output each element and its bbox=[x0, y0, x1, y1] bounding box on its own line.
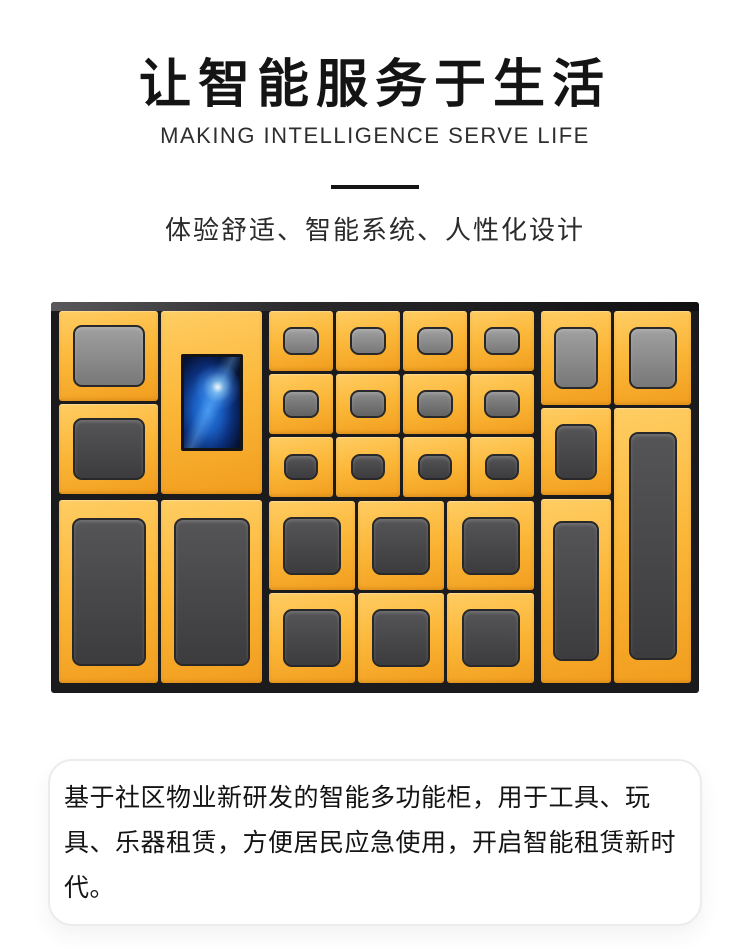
locker-door bbox=[470, 311, 534, 371]
locker-door-window bbox=[418, 454, 452, 480]
locker-door-window bbox=[484, 390, 520, 418]
locker-touchscreen bbox=[181, 354, 243, 451]
locker-door bbox=[447, 501, 534, 590]
locker-door bbox=[447, 593, 534, 683]
locker-door-window bbox=[283, 390, 319, 418]
locker-door-window bbox=[629, 327, 677, 389]
locker-door-window bbox=[350, 327, 386, 355]
locker-door bbox=[161, 500, 262, 683]
locker-door bbox=[59, 311, 158, 401]
locker-door-window bbox=[462, 609, 520, 667]
locker-door-window bbox=[283, 327, 319, 355]
locker-door bbox=[614, 311, 691, 405]
locker-door bbox=[403, 311, 467, 371]
locker-door-window bbox=[284, 454, 318, 480]
locker-door bbox=[269, 374, 333, 434]
locker-door bbox=[336, 437, 400, 497]
locker-door-window bbox=[629, 432, 677, 660]
locker-door bbox=[470, 374, 534, 434]
locker-door bbox=[269, 501, 355, 590]
locker-door-window bbox=[484, 327, 520, 355]
locker-door-window bbox=[73, 325, 145, 387]
locker-door-window bbox=[351, 454, 385, 480]
divider-line bbox=[331, 185, 419, 189]
locker-door-window bbox=[554, 327, 598, 389]
locker-door bbox=[403, 437, 467, 497]
locker-door bbox=[269, 593, 355, 683]
page-title: 让智能服务于生活 bbox=[0, 57, 750, 114]
page-subtitle: MAKING INTELLIGENCE SERVE LIFE bbox=[0, 123, 750, 149]
locker-door-window bbox=[555, 424, 597, 480]
locker-door bbox=[269, 311, 333, 371]
locker-door bbox=[541, 311, 611, 405]
locker-door-window bbox=[553, 521, 599, 661]
locker-door-window bbox=[283, 517, 341, 575]
description-card: 基于社区物业新研发的智能多功能柜，用于工具、玩具、乐器租赁，方便居民应急使用，开… bbox=[48, 759, 702, 926]
locker-door-window bbox=[283, 609, 341, 667]
locker-door bbox=[403, 374, 467, 434]
locker-door-window bbox=[485, 454, 519, 480]
locker-door bbox=[59, 500, 158, 683]
cabinet-doors-area bbox=[59, 311, 691, 683]
locker-door bbox=[541, 499, 611, 683]
locker-door-window bbox=[462, 517, 520, 575]
locker-door bbox=[269, 437, 333, 497]
locker-door-window bbox=[350, 390, 386, 418]
screen-graphic bbox=[184, 357, 240, 448]
locker-door bbox=[336, 311, 400, 371]
locker-door bbox=[358, 501, 444, 590]
locker-door bbox=[336, 374, 400, 434]
locker-door-window bbox=[417, 327, 453, 355]
cabinet-top-edge bbox=[51, 302, 699, 311]
locker-door-window bbox=[372, 609, 430, 667]
locker-door bbox=[59, 404, 158, 494]
locker-door bbox=[470, 437, 534, 497]
locker-door bbox=[358, 593, 444, 683]
locker-door bbox=[541, 408, 611, 495]
locker-door bbox=[161, 311, 262, 494]
locker-door-window bbox=[417, 390, 453, 418]
locker-door-window bbox=[174, 518, 250, 666]
product-detail-page: 让智能服务于生活 MAKING INTELLIGENCE SERVE LIFE … bbox=[0, 0, 750, 926]
description-text: 基于社区物业新研发的智能多功能柜，用于工具、玩具、乐器租赁，方便居民应急使用，开… bbox=[64, 776, 686, 911]
locker-cabinet-image bbox=[51, 302, 699, 693]
locker-door bbox=[614, 408, 691, 683]
locker-door-window bbox=[73, 418, 145, 480]
locker-door-window bbox=[72, 518, 146, 666]
locker-door-window bbox=[372, 517, 430, 575]
tagline: 体验舒适、智能系统、人性化设计 bbox=[0, 210, 750, 247]
